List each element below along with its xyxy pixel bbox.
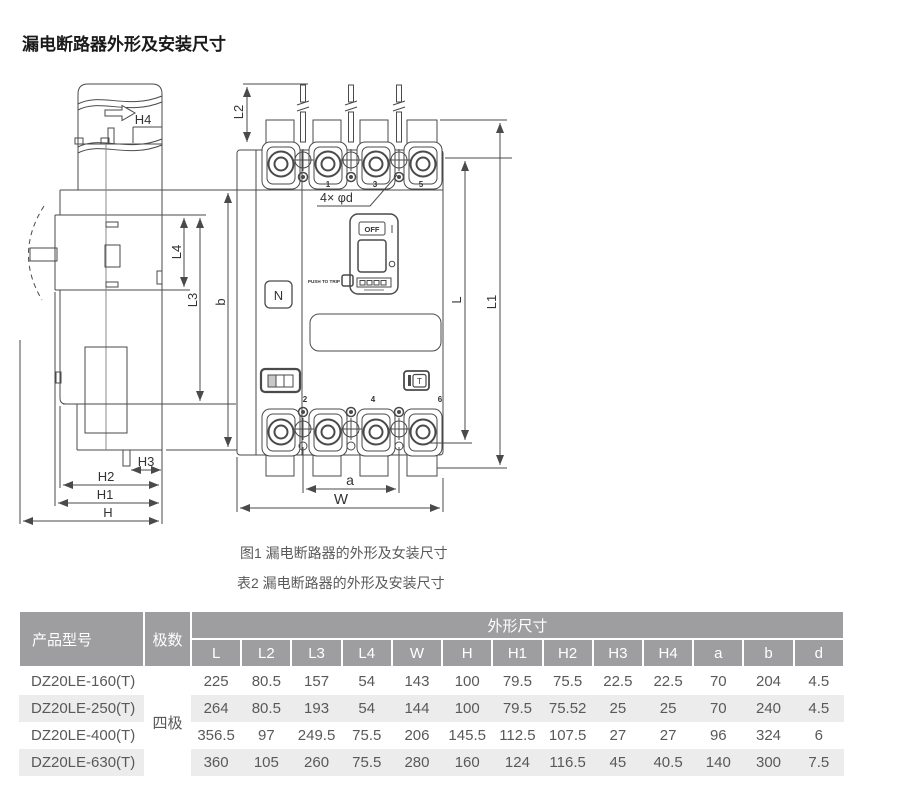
table-caption: 表2 漏电断路器的外形及安装尺寸 [237,573,445,593]
pole-number: 6 [438,395,443,404]
value-cell: 80.5 [241,695,291,722]
figure-caption: 图1 漏电断路器的外形及女装尺寸 [240,543,448,563]
test-label: T [417,377,422,386]
technical-drawing: 1 3 5 4× φd OFF PUSH TO TRIP [0,60,560,540]
dim-label-l2: L2 [231,105,246,119]
value-cell: 25 [593,695,643,722]
dim-label-w: W [334,491,349,508]
value-cell: 124 [492,749,542,776]
value-cell: 145.5 [442,722,492,749]
value-cell: 27 [593,722,643,749]
value-cell: 80.5 [241,667,291,695]
value-cell: 324 [743,722,793,749]
dim-header-L3: L3 [291,639,341,667]
breaker-switch: OFF [350,214,398,294]
pole-number: 5 [419,180,424,189]
neutral-label: N [274,288,283,303]
value-cell: 249.5 [291,722,341,749]
dim-label-h3: H3 [138,454,155,469]
test-button: T [404,371,429,390]
pole-number: 3 [373,180,378,189]
value-cell: 116.5 [543,749,593,776]
value-cell: 54 [342,667,392,695]
value-cell: 143 [392,667,442,695]
value-cell: 157 [291,667,341,695]
dimensions-table: 产品型号 极数 外形尺寸 LL2L3L4WHH1H2H3H4abd DZ20LE… [18,610,845,776]
dim-label-b: b [213,298,228,305]
dim-header-L2: L2 [241,639,291,667]
breaker-handle [30,248,57,261]
table-row: DZ20LE-630(T)36010526075.5280160124116.5… [19,749,844,776]
value-cell: 193 [291,695,341,722]
value-cell: 40.5 [643,749,693,776]
header-product-model: 产品型号 [19,611,144,667]
dim-label-a: a [346,472,354,488]
value-cell: 75.5 [543,667,593,695]
dim-label-h2: H2 [98,469,115,484]
poles-cell: 四极 [144,667,191,776]
value-cell: 54 [342,695,392,722]
value-cell: 360 [191,749,241,776]
dim-header-a: a [693,639,743,667]
value-cell: 140 [693,749,743,776]
table-row: DZ20LE-250(T)26480.51935414410079.575.52… [19,695,844,722]
label-window [310,314,441,351]
model-cell: DZ20LE-250(T) [19,695,144,722]
value-cell: 70 [693,667,743,695]
connector-icon [261,369,300,392]
off-mark-icon [389,261,395,267]
dim-label-h: H [103,505,112,520]
value-cell: 264 [191,695,241,722]
trip-button [342,275,353,286]
push-to-trip-label: PUSH TO TRIP [308,279,340,284]
value-cell: 27 [643,722,693,749]
model-cell: DZ20LE-400(T) [19,722,144,749]
dim-header-L: L [191,639,241,667]
front-view: 1 3 5 4× φd OFF PUSH TO TRIP [237,85,443,476]
value-cell: 22.5 [593,667,643,695]
value-cell: 45 [593,749,643,776]
value-cell: 260 [291,749,341,776]
value-cell: 79.5 [492,667,542,695]
brand-logo [357,278,391,290]
value-cell: 75.5 [342,722,392,749]
value-cell: 300 [743,749,793,776]
value-cell: 204 [743,667,793,695]
page-title: 漏电断路器外形及安装尺寸 [22,30,226,55]
value-cell: 112.5 [492,722,542,749]
dim-header-H3: H3 [593,639,643,667]
pole-number: 2 [303,395,308,404]
pole-number: 4 [371,395,376,404]
dim-label-l1: L1 [484,295,499,309]
value-cell: 356.5 [191,722,241,749]
value-cell: 105 [241,749,291,776]
value-cell: 144 [392,695,442,722]
value-cell: 75.52 [543,695,593,722]
dim-header-H2: H2 [543,639,593,667]
value-cell: 280 [392,749,442,776]
value-cell: 206 [392,722,442,749]
table-row: DZ20LE-160(T)四极22580.51575414310079.575.… [19,667,844,695]
rocker [358,240,386,272]
dim-label-l: L [449,296,464,303]
dim-label-l3: L3 [185,293,200,307]
dim-header-W: W [392,639,442,667]
value-cell: 160 [442,749,492,776]
value-cell: 100 [442,695,492,722]
value-cell: 22.5 [643,667,693,695]
model-cell: DZ20LE-160(T) [19,667,144,695]
off-label: OFF [365,225,380,234]
value-cell: 240 [743,695,793,722]
value-cell: 96 [693,722,743,749]
dim-header-H1: H1 [492,639,542,667]
value-cell: 75.5 [342,749,392,776]
value-cell: 225 [191,667,241,695]
value-cell: 4.5 [794,695,844,722]
value-cell: 6 [794,722,844,749]
header-outline-dimensions: 外形尺寸 [191,611,844,639]
handle-travel-arc [28,206,44,300]
table-row: DZ20LE-400(T)356.597249.575.5206145.5112… [19,722,844,749]
value-cell: 97 [241,722,291,749]
pole-number: 1 [326,180,331,189]
dim-header-d: d [794,639,844,667]
value-cell: 70 [693,695,743,722]
dim-label-h1: H1 [97,487,114,502]
mounting-holes-note: 4× φd [320,191,353,205]
value-cell: 107.5 [543,722,593,749]
value-cell: 25 [643,695,693,722]
dim-header-H: H [442,639,492,667]
dim-header-b: b [743,639,793,667]
dim-header-L4: L4 [342,639,392,667]
value-cell: 4.5 [794,667,844,695]
value-cell: 79.5 [492,695,542,722]
dim-header-H4: H4 [643,639,693,667]
header-poles: 极数 [144,611,191,667]
dim-label-l4: L4 [169,245,184,259]
value-cell: 100 [442,667,492,695]
dim-label-h4: H4 [135,112,152,127]
value-cell: 7.5 [794,749,844,776]
model-cell: DZ20LE-630(T) [19,749,144,776]
side-view [28,84,162,466]
